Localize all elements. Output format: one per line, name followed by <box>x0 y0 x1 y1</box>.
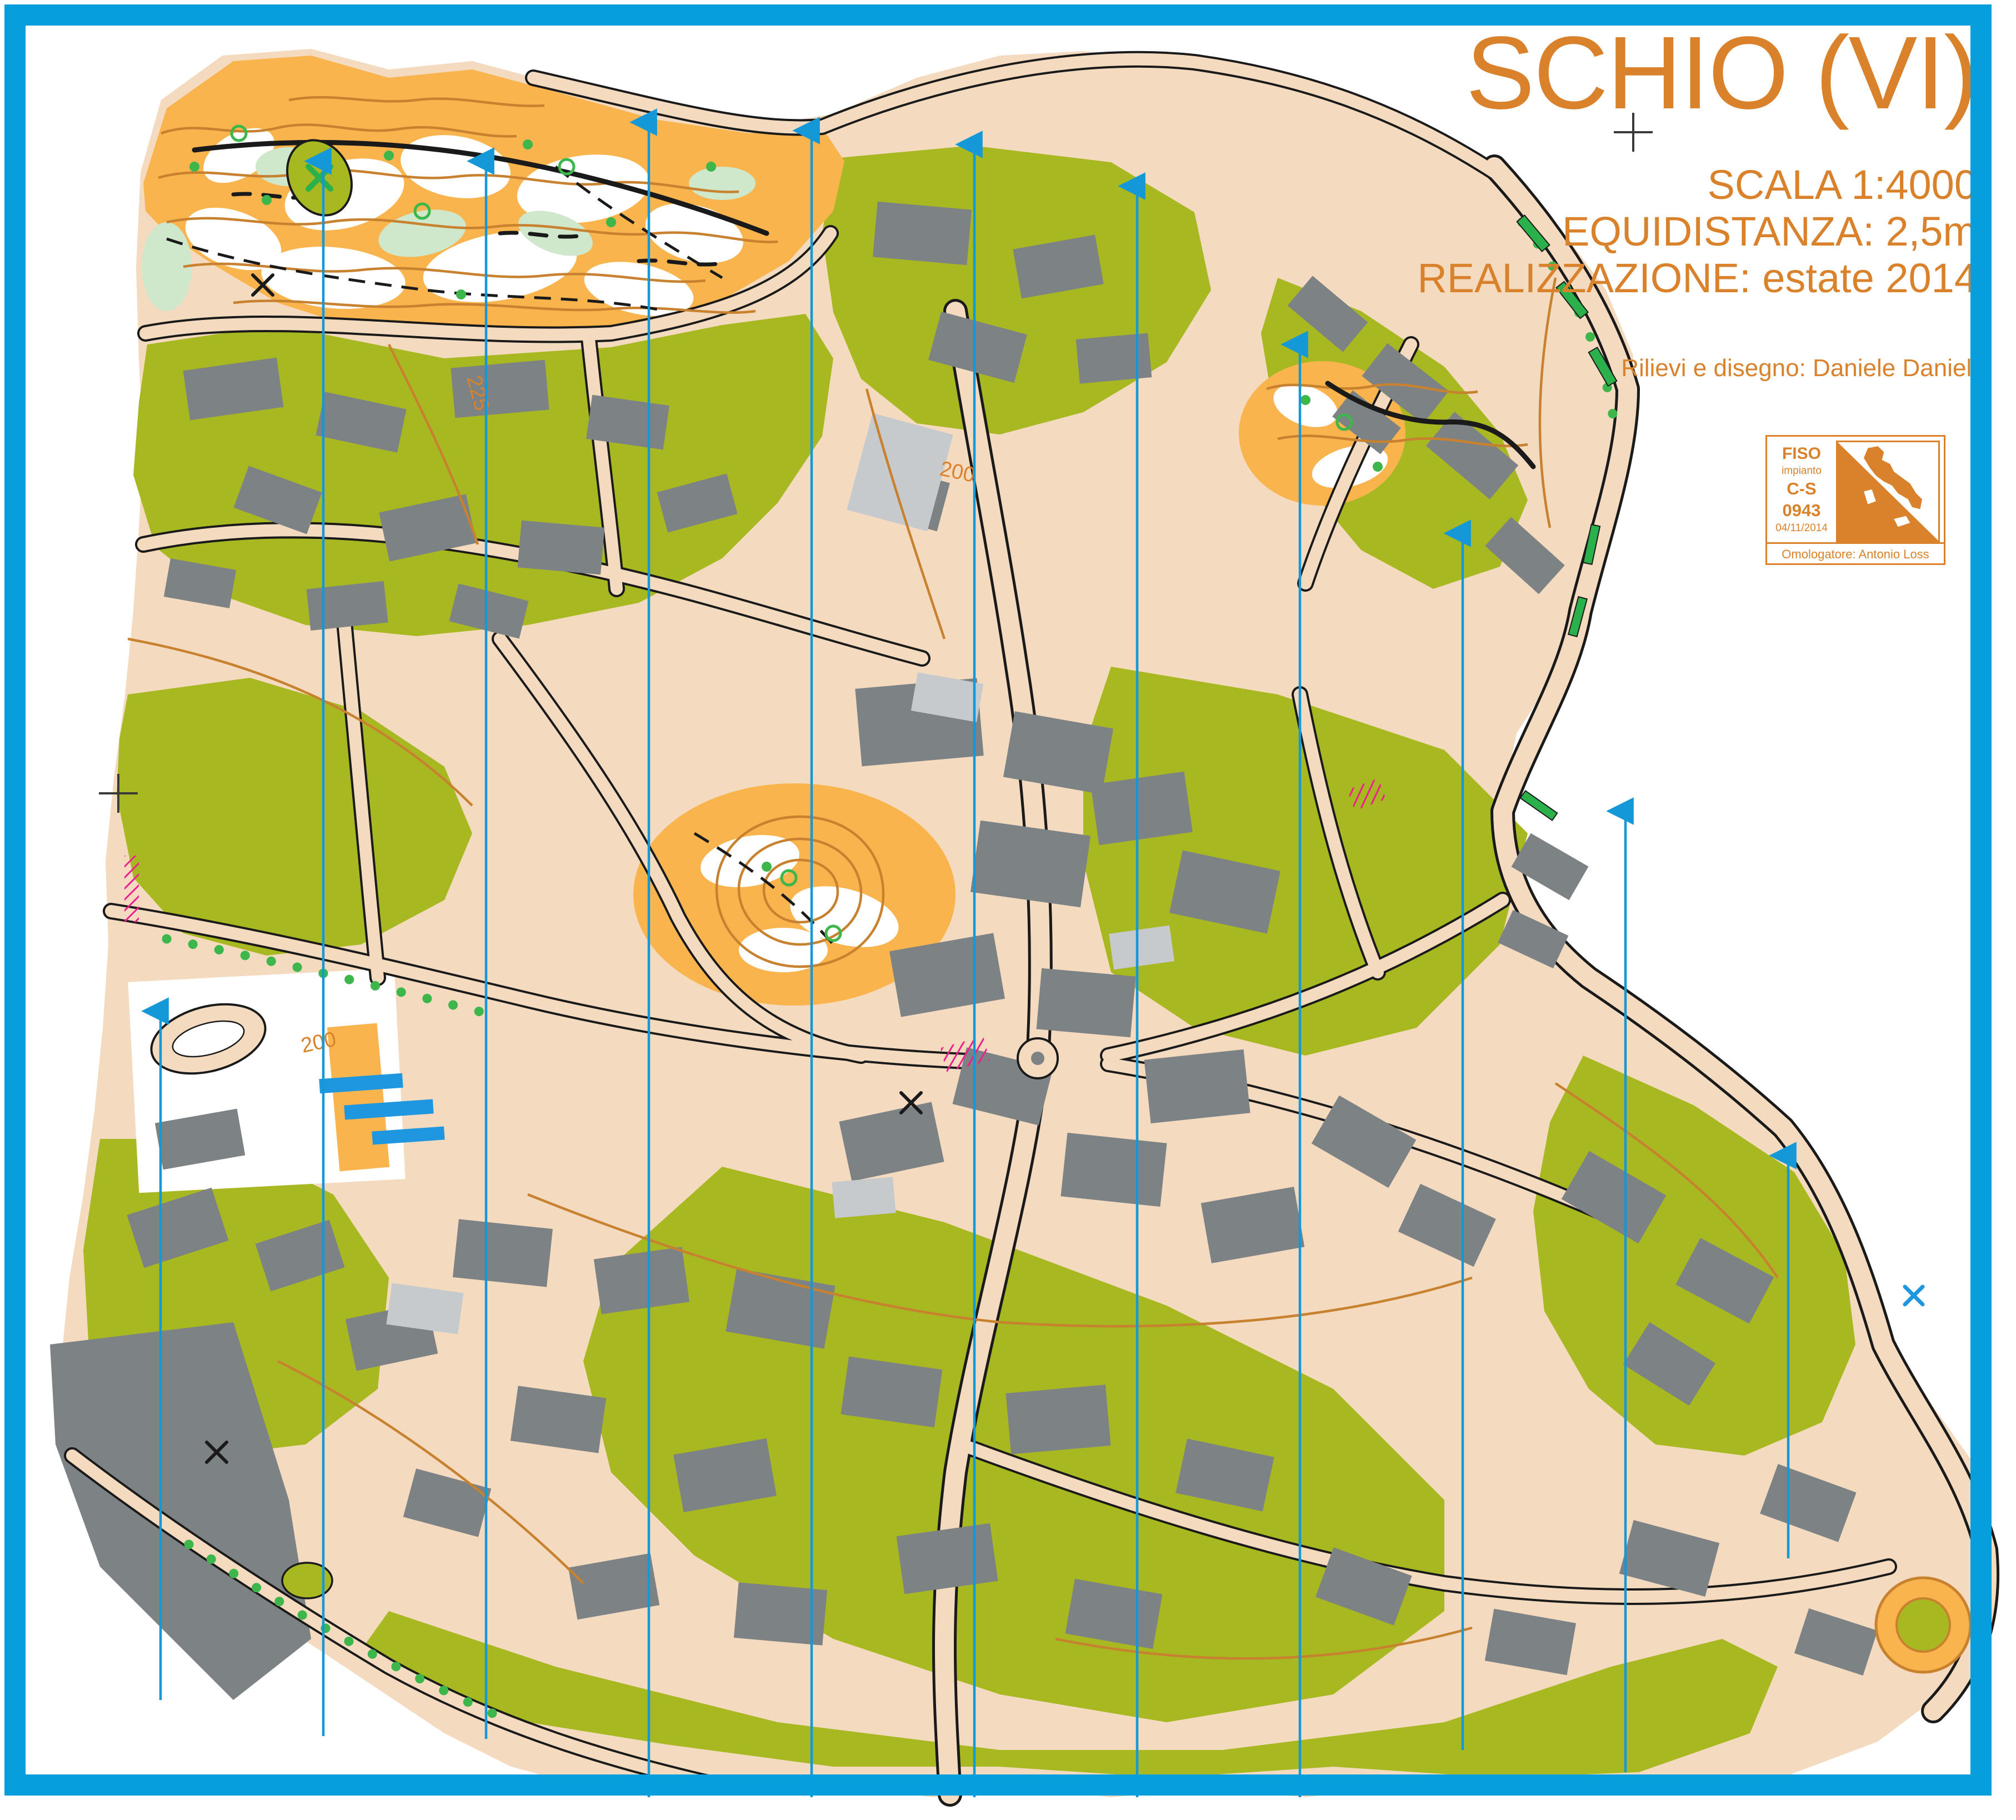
scale-line: SCALA 1:4000 <box>1417 162 1977 208</box>
fiso-homologator: Omologatore: Antonio Loss <box>1767 542 1944 562</box>
realization-line: REALIZZAZIONE: estate 2014 <box>1417 255 1977 302</box>
orienteering-map-sheet: { "page": { "background": "#ffffff", "fr… <box>0 0 2016 1820</box>
roundabout-southeast <box>1876 1578 1970 1672</box>
fiso-homologation-box: FISO impianto C-S 0943 04/11/2014 <box>1765 435 1945 565</box>
fiso-federation-label: FISO <box>1782 444 1821 463</box>
fiso-date: 04/11/2014 <box>1775 522 1828 534</box>
roundabout-centre <box>1018 1038 1058 1078</box>
map-title: SCHIO (VI) <box>1417 19 1977 127</box>
fiso-italy-logo-icon <box>1836 441 1940 542</box>
roundabout-southwest <box>282 1563 332 1598</box>
fiso-number: 0943 <box>1783 501 1821 521</box>
title-block: SCHIO (VI) SCALA 1:4000 EQUIDISTANZA: 2,… <box>1417 19 1977 382</box>
fiso-category: C-S <box>1787 479 1816 499</box>
credits-line: Rilievi e disegno: Daniele Danieli <box>1417 354 1977 382</box>
equidistance-line: EQUIDISTANZA: 2,5m <box>1417 208 1977 255</box>
fiso-impianto-label: impianto <box>1782 465 1822 477</box>
